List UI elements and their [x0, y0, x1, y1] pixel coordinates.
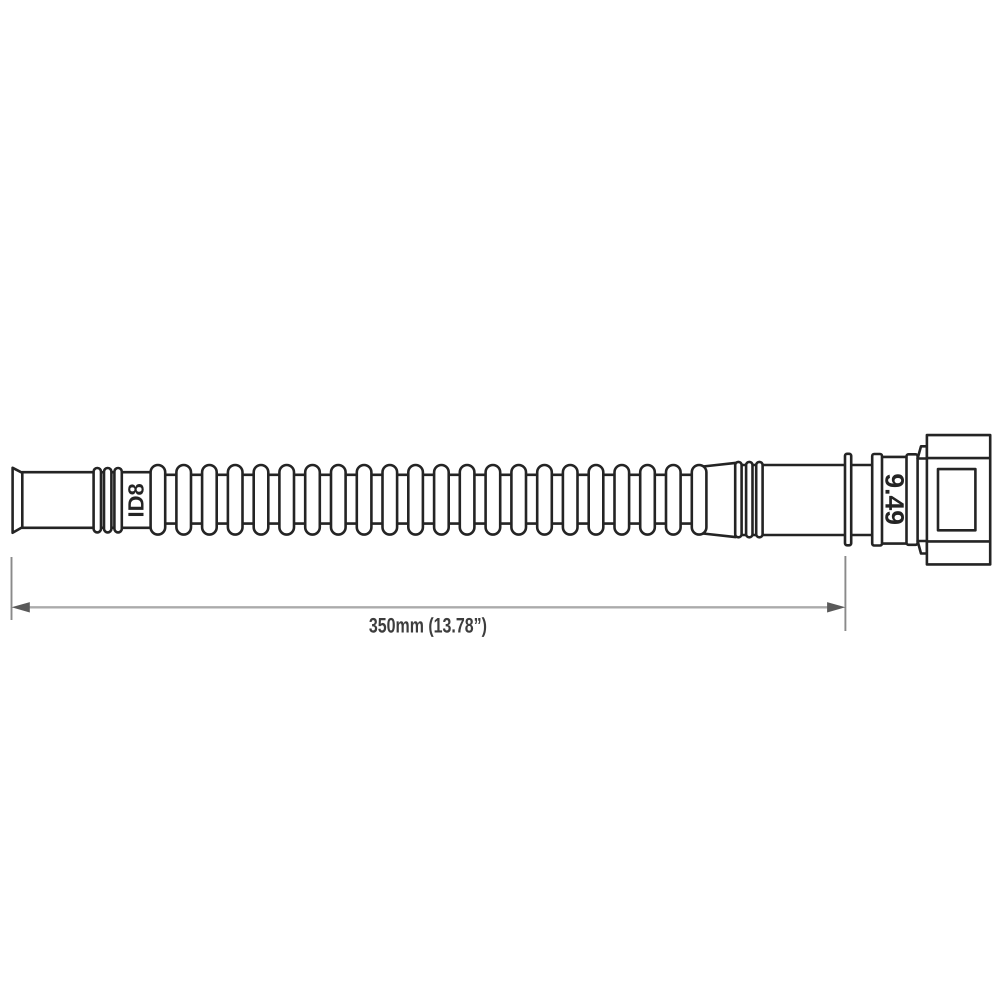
svg-text:350mm (13.78”): 350mm (13.78”)	[369, 615, 487, 638]
svg-text:9.49: 9.49	[880, 473, 910, 525]
svg-text:ID8: ID8	[124, 483, 149, 517]
